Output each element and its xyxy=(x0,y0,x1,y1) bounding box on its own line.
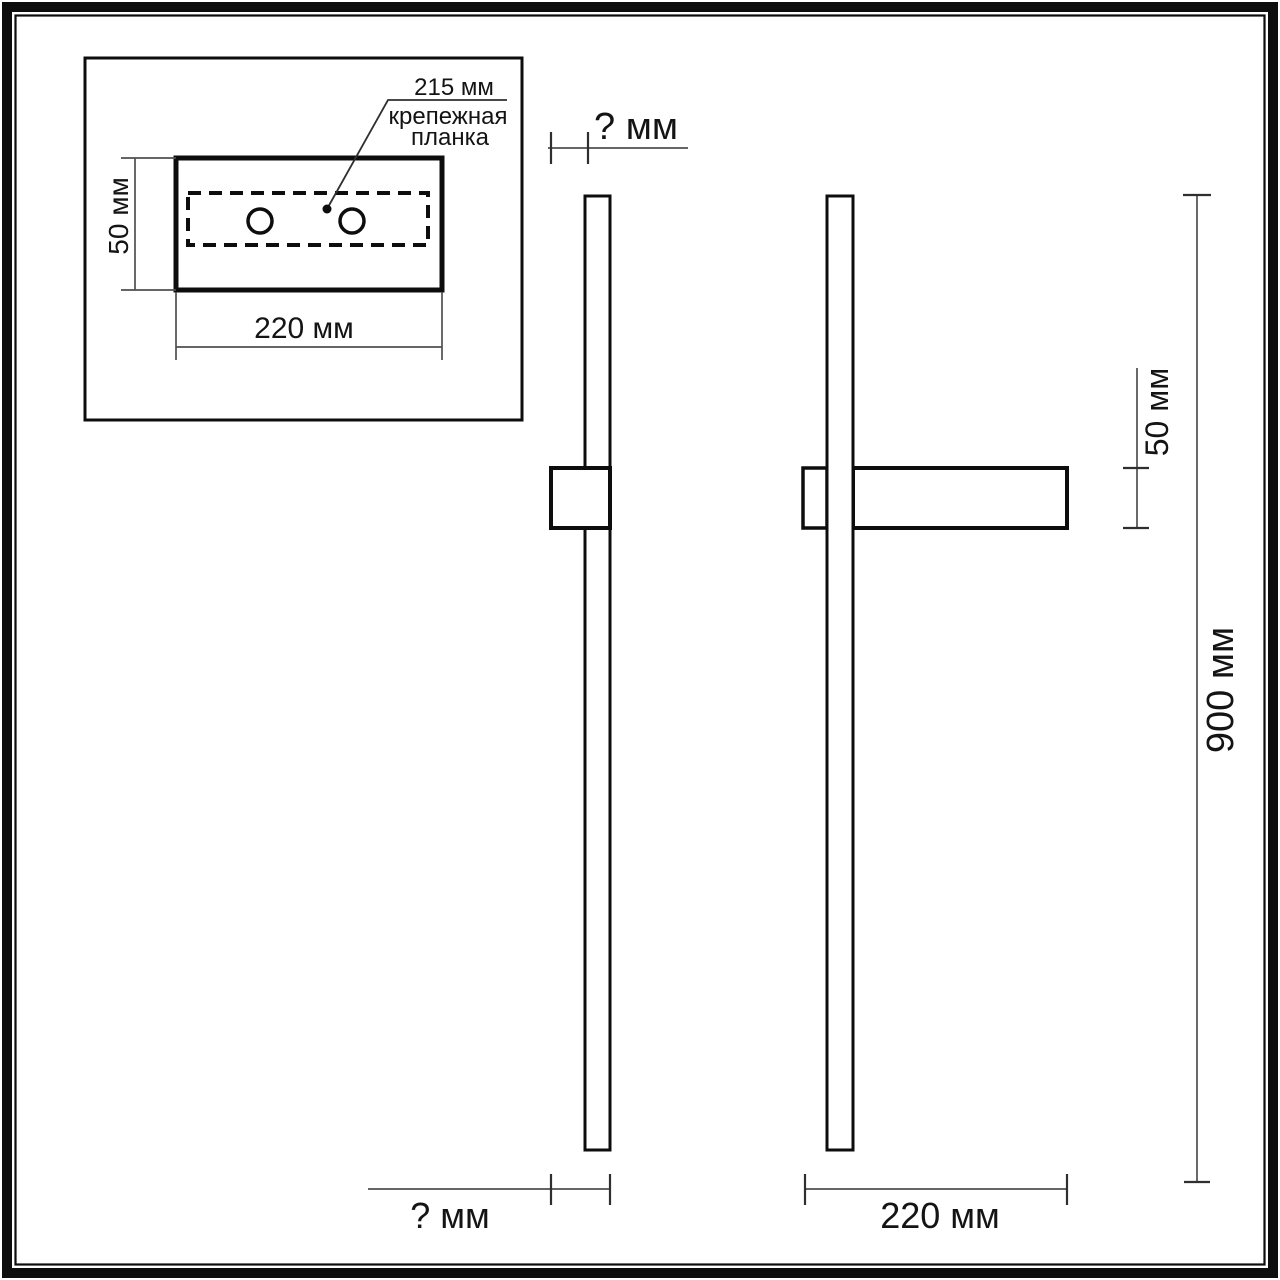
side-view-light-bar xyxy=(585,196,610,1150)
front-total-height-label: 900 мм xyxy=(1200,627,1242,753)
front-plate-width-label: 220 мм xyxy=(880,1195,1000,1236)
page-border-outer xyxy=(7,7,1273,1273)
side-depth-label-top: ? мм xyxy=(594,106,678,148)
screw-hole-right xyxy=(340,209,364,233)
plate-top-view-outline xyxy=(176,158,442,290)
front-view-mount-block-left xyxy=(803,468,827,528)
page-border-inner xyxy=(16,16,1265,1265)
technical-drawing-page: 215 мм крепежная планка 50 мм 220 мм ? м… xyxy=(0,0,1280,1280)
inset-plate-height-label: 50 мм xyxy=(103,177,134,254)
mount-bar-name-line2: планка xyxy=(411,124,490,151)
front-plate-height-label: 50 мм xyxy=(1139,368,1175,456)
screw-hole-left xyxy=(248,209,272,233)
side-depth-label-bottom: ? мм xyxy=(410,1195,490,1236)
side-view-mount-block xyxy=(551,468,610,528)
inset-plate-width-label: 220 мм xyxy=(254,312,354,345)
callout-leader-dot xyxy=(323,205,332,214)
dimension-drawing: 215 мм крепежная планка 50 мм 220 мм ? м… xyxy=(0,0,1280,1280)
front-view-light-bar xyxy=(827,196,853,1150)
hole-spacing-label: 215 мм xyxy=(414,74,494,101)
mounting-bar-dashed-outline xyxy=(188,193,428,245)
front-view-mounting-plate xyxy=(853,468,1067,528)
